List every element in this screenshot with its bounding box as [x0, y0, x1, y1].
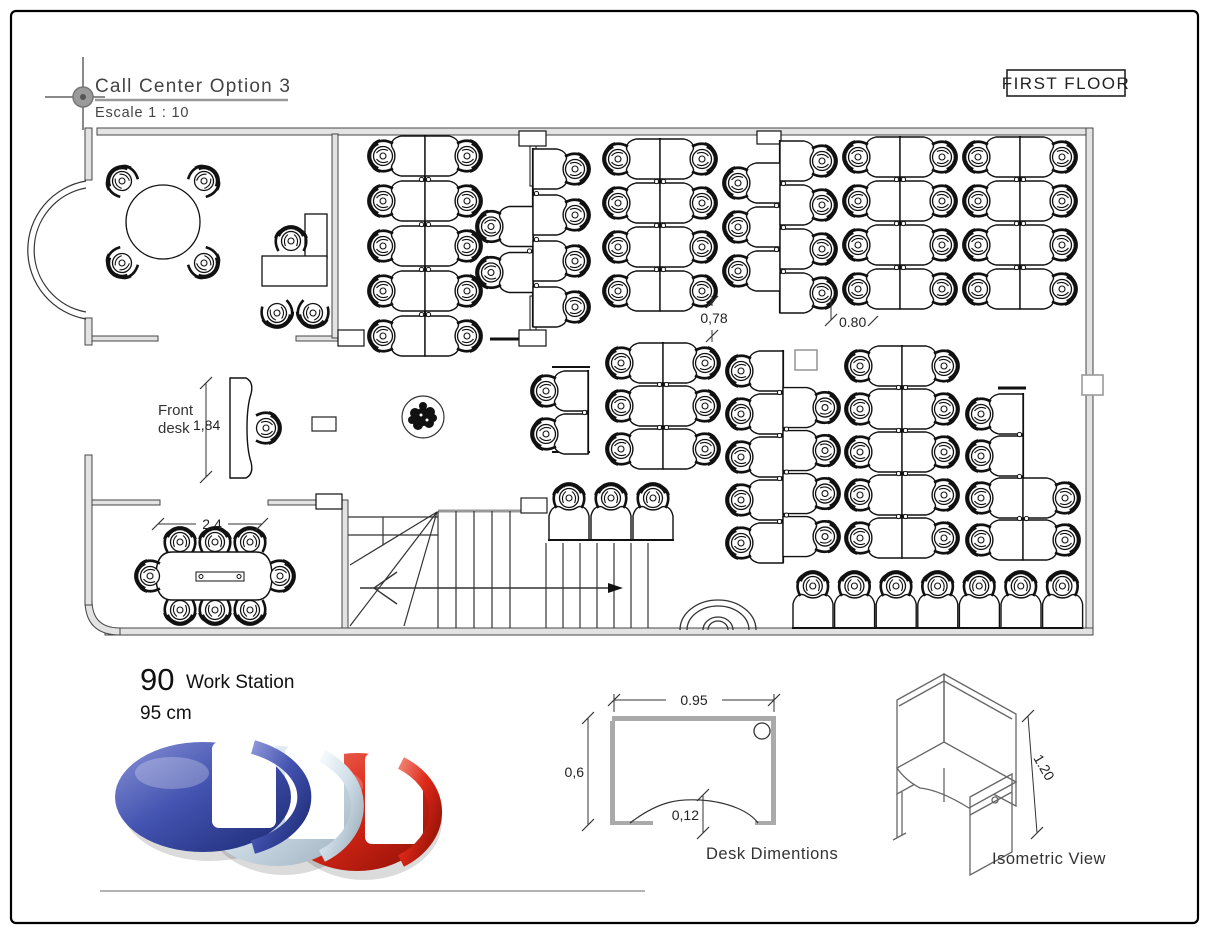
workstation-chair [695, 433, 719, 465]
column-box [338, 330, 364, 346]
cable-port-icon [901, 265, 905, 269]
workstation-chair [607, 390, 631, 422]
guest-chair [259, 299, 296, 330]
cable-port-icon [534, 191, 538, 195]
workstation-cluster [548, 484, 674, 540]
workstation-cluster [477, 148, 589, 327]
workstation-chair [477, 257, 501, 289]
workstation-desk [533, 149, 567, 189]
workstation-chair [727, 355, 751, 387]
workstation-chair [844, 273, 868, 305]
workstation-desk [989, 478, 1023, 518]
workstation-chair [967, 398, 991, 430]
workstation-layer [369, 135, 1083, 628]
workstation-desk [391, 271, 425, 311]
workstation-desk [660, 227, 694, 267]
workstation-cluster [846, 345, 958, 558]
cable-port-icon [419, 177, 423, 181]
workstation-desk [902, 389, 936, 429]
front-desk [230, 378, 252, 478]
workstation-desk [533, 195, 567, 235]
dimension-label: 0,78 [700, 310, 727, 326]
column-box [316, 494, 342, 509]
dimension-label: 1,84 [193, 417, 220, 433]
workstation-chair [846, 393, 870, 425]
workstation-chair [967, 482, 991, 514]
cable-port-icon [661, 223, 665, 227]
workstation-chair [815, 392, 839, 424]
workstation-chair [695, 390, 719, 422]
workstation-desk [900, 225, 934, 265]
workstation-desk [1020, 269, 1054, 309]
cable-port-icon [1014, 221, 1018, 225]
workstation-chair [846, 479, 870, 511]
workstation-desk [425, 271, 459, 311]
workstation-desk [1043, 594, 1083, 628]
workstation-desk [554, 414, 588, 454]
workstation-desk [866, 137, 900, 177]
workstation-chair [604, 275, 628, 307]
workstation-chair [812, 189, 836, 221]
workstation-desk [749, 351, 783, 391]
desk-dimensions-caption: Desk Dimentions [706, 845, 838, 863]
workstation-chair [812, 145, 836, 177]
workstation-chair [369, 185, 393, 217]
workstation-chair [846, 522, 870, 554]
dimension-label: 0,12 [672, 807, 699, 823]
dimension-label: 2,4 [202, 516, 222, 532]
workstation-cluster [607, 342, 719, 469]
workstation-desk [663, 386, 697, 426]
workstation-desk [868, 389, 902, 429]
manager-desk-area [259, 214, 331, 330]
cable-port-icon [784, 470, 788, 474]
workstation-desk [660, 139, 694, 179]
workstation-chair [932, 273, 956, 305]
plant [402, 396, 444, 438]
workstation-chair [963, 572, 995, 596]
cable-port-icon [426, 177, 430, 181]
workstation-desk [626, 139, 660, 179]
workstation-desk [629, 386, 663, 426]
workstation-chair [967, 440, 991, 472]
cable-port-icon [664, 425, 668, 429]
workstation-chair [692, 231, 716, 263]
workstation-desk [780, 141, 814, 181]
cable-port-icon [657, 425, 661, 429]
cable-port-icon [781, 269, 785, 273]
workstation-desk [660, 183, 694, 223]
workstation-desk [425, 181, 459, 221]
dimension-label: 1.20 [1030, 752, 1058, 784]
workstation-desk [425, 316, 459, 356]
isometric-view-diagram: 1.20 Isometric View [893, 674, 1106, 875]
workstation-desk [749, 394, 783, 434]
workstation-desk [391, 136, 425, 176]
workstation-desk [1020, 225, 1054, 265]
cable-port-icon [426, 267, 430, 271]
cable-port-icon [654, 179, 658, 183]
workstation-desk [918, 594, 958, 628]
workstation-desk [989, 394, 1023, 434]
workstation-chair [637, 484, 669, 508]
column-box [519, 330, 546, 346]
workstation-chair [815, 478, 839, 510]
cable-port-icon [661, 267, 665, 271]
cable-port-icon [1017, 516, 1021, 520]
cable-port-icon [777, 519, 781, 523]
workstation-desk [868, 518, 902, 558]
workstation-desk [866, 269, 900, 309]
summary-note: 90 Work Station 95 cm [140, 662, 294, 724]
cable-port-icon [1017, 474, 1021, 478]
workstation-desk [793, 594, 833, 628]
workstation-desk [902, 432, 936, 472]
cable-port-icon [896, 514, 900, 518]
cable-port-icon [661, 179, 665, 183]
workstation-desk [783, 431, 817, 471]
grommet-hole [754, 723, 770, 739]
workstation-chair [844, 185, 868, 217]
manager-desk-return [262, 256, 327, 286]
workstation-desk [986, 225, 1020, 265]
workstation-desk [780, 229, 814, 269]
workstation-chair [457, 230, 481, 262]
workstation-chair [727, 527, 751, 559]
workstation-desk [549, 506, 589, 540]
column-box [757, 131, 781, 144]
svg-text:desk: desk [158, 420, 190, 437]
workstation-cluster [532, 370, 588, 454]
round-table [126, 185, 200, 259]
workstation-desk [1020, 137, 1054, 177]
workstation-desk [425, 136, 459, 176]
workstation-chair [1055, 524, 1079, 556]
workstation-chair [964, 273, 988, 305]
cable-port-icon [903, 428, 907, 432]
cable-port-icon [419, 312, 423, 316]
cable-port-icon [784, 513, 788, 517]
workstation-desk [663, 429, 697, 469]
isometric-caption: Isometric View [992, 850, 1106, 868]
workstation-chair [846, 350, 870, 382]
workstation-chair [695, 347, 719, 379]
workstation-desk [533, 287, 567, 327]
workstation-chair [565, 291, 589, 323]
cable-port-icon [896, 471, 900, 475]
cable-port-icon [654, 223, 658, 227]
workstation-desk [1023, 520, 1057, 560]
cable-port-icon [894, 221, 898, 225]
workstation-desk [1020, 181, 1054, 221]
workstation-chair [964, 185, 988, 217]
workstation-cluster [727, 350, 839, 563]
workstation-desk [868, 475, 902, 515]
workstation-chair [964, 229, 988, 261]
manager-desk [305, 214, 327, 258]
first-floor-label: FIRST FLOOR [1002, 70, 1131, 96]
workstation-chair [1052, 185, 1076, 217]
drawing-scale: Escale 1 : 10 [95, 105, 189, 121]
round-table-area [101, 160, 225, 284]
floor-box [312, 417, 336, 431]
floor-name: FIRST FLOOR [1002, 74, 1131, 93]
workstation-desk [986, 269, 1020, 309]
cable-port-icon [582, 410, 586, 414]
cable-port-icon [774, 203, 778, 207]
workstation-desk [499, 207, 533, 247]
workstation-desk [835, 594, 875, 628]
workstation-count: 90 [140, 662, 174, 697]
workstation-desk [868, 432, 902, 472]
workstation-chair [477, 211, 501, 243]
workstation-desk [902, 346, 936, 386]
column-box [521, 498, 547, 513]
workstation-desk [391, 226, 425, 266]
workstation-chair [369, 320, 393, 352]
workstation-chair [812, 233, 836, 265]
cable-port-icon [901, 221, 905, 225]
workstation-cluster [604, 138, 716, 311]
workstation-desk [425, 226, 459, 266]
workstation-desk [663, 343, 697, 383]
workstation-desk [783, 517, 817, 557]
cable-port-icon [654, 267, 658, 271]
desk-dimensions-diagram: 0.95 0,6 0,12 Desk Dimentions [565, 692, 839, 863]
workstation-cluster [369, 135, 481, 356]
workstation-chair [844, 229, 868, 261]
cable-port-icon [426, 222, 430, 226]
cable-port-icon [901, 177, 905, 181]
cable-port-icon [784, 427, 788, 431]
workstation-desk [391, 181, 425, 221]
cable-port-icon [419, 222, 423, 226]
workstation-chair [932, 229, 956, 261]
workstation-desk [783, 388, 817, 428]
workstation-chair [553, 484, 585, 508]
workstation-chair [565, 245, 589, 277]
workstation-desk [866, 225, 900, 265]
workstation-desk [780, 185, 814, 225]
workstation-desk [989, 520, 1023, 560]
workstation-chair [457, 185, 481, 217]
cable-port-icon [1024, 516, 1028, 520]
workstation-count-label: Work Station [186, 672, 294, 693]
workstation-chair [604, 187, 628, 219]
workstation-desk [1001, 594, 1041, 628]
workstation-desk [660, 271, 694, 311]
fountain-arc [680, 600, 756, 630]
workstation-chair [369, 230, 393, 262]
workstation-cluster [724, 140, 836, 313]
workstation-desk [629, 343, 663, 383]
cable-port-icon [896, 385, 900, 389]
workstation-desk [900, 137, 934, 177]
workstation-chair [727, 398, 751, 430]
workstation-chair [815, 521, 839, 553]
title-block: Call Center Option 3 Escale 1 : 10 [45, 57, 291, 130]
workstation-desk [591, 506, 631, 540]
workstation-chair [607, 433, 631, 465]
workstation-desk [986, 137, 1020, 177]
cable-port-icon [657, 382, 661, 386]
cable-port-icon [534, 283, 538, 287]
workstation-cluster [967, 393, 1079, 560]
workstation-chair [922, 572, 954, 596]
workstation-desk [900, 269, 934, 309]
workstation-chair [565, 199, 589, 231]
logo-letter-c-blue [115, 742, 304, 852]
cable-port-icon [534, 237, 538, 241]
workstation-desk [626, 271, 660, 311]
workstation-desk [902, 518, 936, 558]
cable-port-icon [426, 312, 430, 316]
workstation-chair [932, 185, 956, 217]
workstation-chair [967, 524, 991, 556]
workstation-desk [986, 181, 1020, 221]
cable-port-icon [1014, 265, 1018, 269]
workstation-chair [934, 522, 958, 554]
cable-port-icon [777, 390, 781, 394]
cable-port-icon [894, 265, 898, 269]
drawing-title: Call Center Option 3 [95, 76, 291, 97]
workstation-chair [724, 255, 748, 287]
workstation-desk [554, 371, 588, 411]
workstation-desk [783, 474, 817, 514]
dimension-label: 0,6 [565, 764, 585, 780]
workstation-desk [629, 429, 663, 469]
workstation-chair [1005, 572, 1037, 596]
workstation-chair [692, 187, 716, 219]
workstation-chair [532, 375, 556, 407]
workstation-desk [746, 163, 780, 203]
workstation-desk [749, 480, 783, 520]
workstation-chair [932, 141, 956, 173]
workstation-desk [900, 181, 934, 221]
workstation-chair [457, 140, 481, 172]
workstation-desk [780, 273, 814, 313]
column-box [1082, 375, 1103, 395]
workstation-desk [866, 181, 900, 221]
conference-area: 2,4 [136, 516, 294, 624]
workstation-chair [369, 140, 393, 172]
cable-port-icon [664, 382, 668, 386]
workstation-chair [727, 484, 751, 516]
workstation-desk [633, 506, 673, 540]
workstation-chair [964, 141, 988, 173]
workstation-chair [369, 275, 393, 307]
workstation-desk [626, 227, 660, 267]
cable-port-icon [781, 181, 785, 185]
workstation-chair [812, 277, 836, 309]
workstation-chair [724, 167, 748, 199]
cable-port-icon [903, 471, 907, 475]
cable-port-icon [781, 225, 785, 229]
workstation-desk [749, 523, 783, 563]
floor-plan-sheet: Call Center Option 3 Escale 1 : 10 FIRST… [0, 0, 1209, 934]
workstation-chair [595, 484, 627, 508]
workstation-desk [626, 183, 660, 223]
cable-port-icon [777, 476, 781, 480]
desk-height-note: 95 cm [140, 703, 192, 724]
dimension-label: 0.80 [839, 314, 866, 330]
workstation-chair [1052, 273, 1076, 305]
workstation-chair [846, 436, 870, 468]
cable-port-icon [774, 247, 778, 251]
workstation-desk [533, 241, 567, 281]
column-box [519, 131, 546, 146]
workstation-cluster [792, 572, 1083, 628]
cable-port-icon [1017, 432, 1021, 436]
workstation-desk [1023, 478, 1057, 518]
workstation-chair [934, 479, 958, 511]
workstation-desk [902, 475, 936, 515]
workstation-chair [724, 211, 748, 243]
workstation-chair [565, 153, 589, 185]
workstation-chair [934, 436, 958, 468]
workstation-desk [989, 436, 1023, 476]
workstation-chair [934, 350, 958, 382]
dimension-label: 0.95 [680, 692, 707, 708]
workstation-chair [457, 320, 481, 352]
workstation-chair [604, 231, 628, 263]
workstation-cluster [964, 136, 1076, 309]
cable-port-icon [1014, 177, 1018, 181]
workstation-chair [797, 572, 829, 596]
workstation-chair [1052, 229, 1076, 261]
workstation-desk [746, 207, 780, 247]
workstation-chair [1052, 141, 1076, 173]
workstation-cluster [844, 136, 956, 309]
cable-port-icon [1021, 221, 1025, 225]
workstation-chair [692, 143, 716, 175]
workstation-desk [959, 594, 999, 628]
workstation-chair [532, 418, 556, 450]
cable-port-icon [896, 428, 900, 432]
cable-port-icon [419, 267, 423, 271]
cable-port-icon [527, 249, 531, 253]
workstation-chair [727, 441, 751, 473]
guest-chair [294, 299, 331, 330]
workstation-chair [604, 143, 628, 175]
workstation-chair [1055, 482, 1079, 514]
front-desk-label: Front [158, 402, 194, 419]
front-desk-dimension: Front desk 1,84 [158, 377, 220, 483]
workstation-chair [844, 141, 868, 173]
cable-port-icon [1021, 265, 1025, 269]
workstation-desk [876, 594, 916, 628]
workstation-chair [838, 572, 870, 596]
workstation-chair [1046, 572, 1078, 596]
cable-port-icon [777, 433, 781, 437]
cable-port-icon [903, 514, 907, 518]
front-desk-area: Front desk 1,84 [158, 377, 280, 483]
ccc-logo [100, 742, 645, 891]
workstation-desk [391, 316, 425, 356]
cable-port-icon [894, 177, 898, 181]
workstation-desk [868, 346, 902, 386]
workstation-chair [607, 347, 631, 379]
workstation-chair [815, 435, 839, 467]
column-box [795, 350, 817, 370]
workstation-desk [746, 251, 780, 291]
cable-port-icon [1021, 177, 1025, 181]
workstation-desk [499, 253, 533, 293]
workstation-desk [749, 437, 783, 477]
cable-port-icon [903, 385, 907, 389]
workstation-chair [934, 393, 958, 425]
workstation-chair [880, 572, 912, 596]
